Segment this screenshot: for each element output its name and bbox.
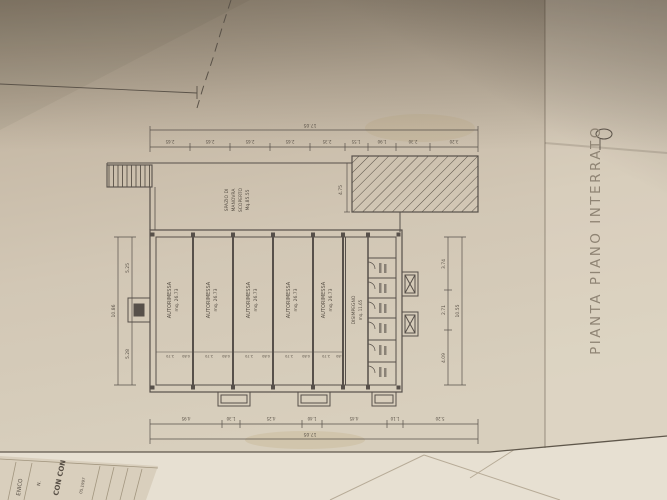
dim-label: 1.30 — [226, 416, 235, 421]
dim-label: 2.70 — [322, 354, 330, 358]
under-sheet-fragment: N. — [36, 481, 43, 487]
garage-label: AUTORIMESSA — [206, 281, 212, 318]
dim-label: 2.65 — [205, 139, 214, 144]
maneuver-space-line: MANOVRA — [231, 188, 237, 212]
dim-label: 5.25 — [125, 263, 131, 273]
dim-label: 0.80 — [182, 354, 190, 358]
dim-label: 2.65 — [285, 139, 294, 144]
covered-ramp-hatch — [352, 156, 478, 212]
dim-label: 2.70 — [166, 354, 174, 358]
dim-label: 1.55 — [351, 139, 360, 144]
garage-area-label: mq. 26.73 — [213, 288, 219, 311]
dim-label: 2.70 — [285, 354, 293, 358]
maneuver-space-line: SCOPERTO — [238, 187, 244, 212]
dim-label: 2.35 — [322, 139, 331, 144]
dim-label: 0.80 — [222, 354, 230, 358]
garage-area-label: mq. 26.73 — [253, 288, 259, 311]
dim-total-label: 17.05 — [303, 122, 316, 128]
dim-label: 2.70 — [245, 354, 253, 358]
dim-ramp-label: 4.75 — [338, 185, 344, 195]
garage-label: AUTORIMESSA — [321, 281, 327, 318]
dim-label: 2.65 — [165, 139, 174, 144]
maneuver-space-line: SPAZIO DI — [224, 189, 230, 212]
dim-label: 2.70 — [205, 354, 213, 358]
dim-label: 1.10 — [390, 416, 399, 421]
maneuver-space-line: Mq.85.55 — [245, 189, 251, 210]
dim-label: 5.20 — [435, 416, 444, 421]
dim-label: 1.40 — [307, 416, 316, 421]
dim-label: 4.25 — [266, 416, 275, 421]
garage-label: AUTORIMESSA — [286, 281, 292, 318]
garage-area-label: mq. 26.73 — [174, 288, 180, 311]
photo-of-floor-plan: ENICO N. CON CON 05.1997 — [0, 0, 667, 500]
dim-total-label: 17.05 — [303, 431, 316, 437]
dim-label: 2.71 — [441, 305, 447, 315]
dim-label: 5.28 — [125, 349, 131, 359]
corridor-label: DISIMPEGNO — [351, 295, 357, 324]
dim-label: 2.65 — [245, 139, 254, 144]
garage-label: AUTORIMESSA — [246, 281, 252, 318]
dim-label: 4.09 — [441, 353, 447, 363]
title-text: PIANTA PIANO INTERRATO — [588, 125, 604, 355]
garage-area-label: mq. 26.73 — [328, 288, 334, 311]
ramp-hatch — [107, 165, 152, 187]
dim-label: 3.74 — [441, 259, 447, 269]
floor-plan-photo-svg: ENICO N. CON CON 05.1997 — [0, 0, 667, 500]
garage-label: AUTORIMESSA — [167, 281, 173, 318]
dim-label: 4.95 — [181, 416, 190, 421]
dim-label: 0.80 — [302, 354, 310, 358]
garage-area-label: mq. 26.73 — [293, 288, 299, 311]
dim-total-label: 10.55 — [455, 304, 461, 317]
dim-label: 2.30 — [408, 139, 417, 144]
dim-label: 0.80 — [336, 354, 344, 358]
corridor-area-label: mq. 11.65 — [358, 299, 363, 320]
sheet-right-panel — [545, 0, 667, 448]
dim-label: 1.90 — [377, 139, 386, 144]
stain — [365, 114, 475, 142]
dim-label: 4.45 — [349, 416, 358, 421]
dim-label: 3.20 — [449, 139, 458, 144]
dim-label: 0.80 — [262, 354, 270, 358]
dim-total-label: 10.86 — [111, 304, 117, 317]
